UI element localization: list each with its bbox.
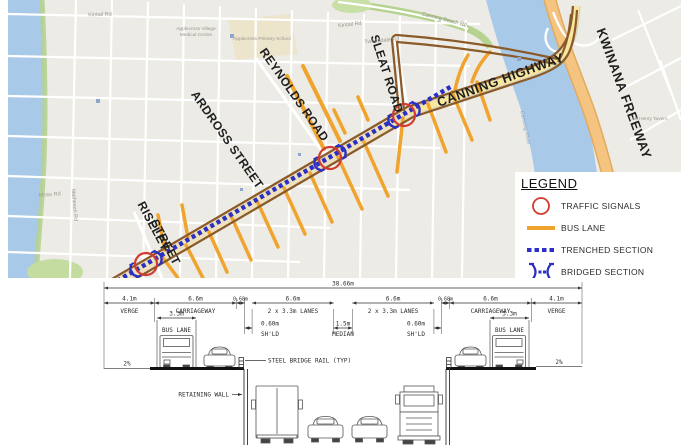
label-shoulder-right: SH'LD (407, 331, 425, 338)
truck-front-trench (396, 386, 443, 444)
label-slope-right: 2% (555, 359, 563, 366)
label-bus-lane-right: BUS LANE (495, 327, 524, 334)
map-legend: LEGEND TRAFFIC SIGNALS BUS LANE TRENCHED… (515, 172, 681, 278)
bus-lane-icon (521, 218, 561, 238)
dim-overall: 38.66m (332, 281, 354, 288)
legend-label: BRIDGED SECTION (561, 267, 644, 277)
truck-rear-trench (252, 386, 303, 443)
label-tavern: Mt Henry Tavern (632, 116, 667, 122)
car-right-deck (455, 347, 486, 369)
car-rear-trench (308, 417, 343, 443)
label-verge-left: VERGE (120, 308, 138, 315)
dim-lanes-left: 6.6m (286, 296, 301, 303)
label-lanes-left: 2 x 3.3m LANES (268, 308, 319, 315)
label-median: MEDIAN (332, 331, 354, 338)
label-school: Applecross Primary School (233, 36, 291, 42)
dim-verge-right: 4.1m (549, 296, 564, 303)
bus-right (493, 336, 526, 369)
label-slope-left: 2% (123, 361, 131, 368)
label-medical-1: Applecross Village (176, 26, 216, 32)
label-steel-bridge-rail: STEEL BRIDGE RAIL (TYP) (268, 358, 351, 365)
dim-bus-lane-right: 3.3m (502, 311, 517, 318)
cross-section-diagram: 38.66m 4.1m 6.6m 0.68m 6.6m 6.6m 0.68m 6… (0, 278, 681, 445)
dim-carriageway-right: 6.6m (483, 296, 498, 303)
dim-shoulder-right: 0.60m (407, 321, 425, 328)
dim-bus-lane-left: 3.3m (169, 311, 184, 318)
label-medical-2: Medical Centre (180, 32, 213, 38)
project-map: REYNOLDS ROAD ARDROSS STREET SLEAT ROAD … (0, 0, 681, 278)
car-front-trench (352, 417, 387, 443)
legend-title: LEGEND (521, 176, 681, 191)
legend-item-trenched-section: TRENCHED SECTION (521, 239, 681, 261)
label-retaining-wall: RETAINING WALL (178, 392, 229, 399)
dim-barrier-left: 0.68m (233, 297, 248, 303)
trenched-section-icon (521, 240, 561, 260)
label-kintail-rd-1: Kintail Rd (88, 12, 112, 19)
legend-label: TRAFFIC SIGNALS (561, 201, 641, 211)
dim-lanes-right: 6.6m (386, 296, 401, 303)
dim-shoulder-left: 0.60m (261, 321, 279, 328)
traffic-signal-icon (521, 196, 561, 216)
dim-verge-left: 4.1m (122, 296, 137, 303)
legend-item-bus-lane: BUS LANE (521, 217, 681, 239)
legend-item-traffic-signals: TRAFFIC SIGNALS (521, 195, 681, 217)
label-verge-right: VERGE (547, 308, 565, 315)
dim-carriageway-left: 6.6m (188, 296, 203, 303)
project-figure: REYNOLDS ROAD ARDROSS STREET SLEAT ROAD … (0, 0, 681, 445)
dim-barrier-right: 0.68m (438, 297, 453, 303)
cross-section-canvas: 38.66m 4.1m 6.6m 0.68m 6.6m 6.6m 0.68m 6… (0, 278, 681, 445)
car-left-deck (204, 347, 235, 369)
label-lanes-right: 2 x 3.3m LANES (368, 308, 419, 315)
label-bus-lane-left: BUS LANE (162, 327, 191, 334)
bus-left (160, 336, 193, 369)
legend-label: TRENCHED SECTION (561, 245, 653, 255)
dim-median: 1.5m (336, 321, 351, 328)
legend-label: BUS LANE (561, 223, 605, 233)
label-shoulder-left: SH'LD (261, 331, 279, 338)
